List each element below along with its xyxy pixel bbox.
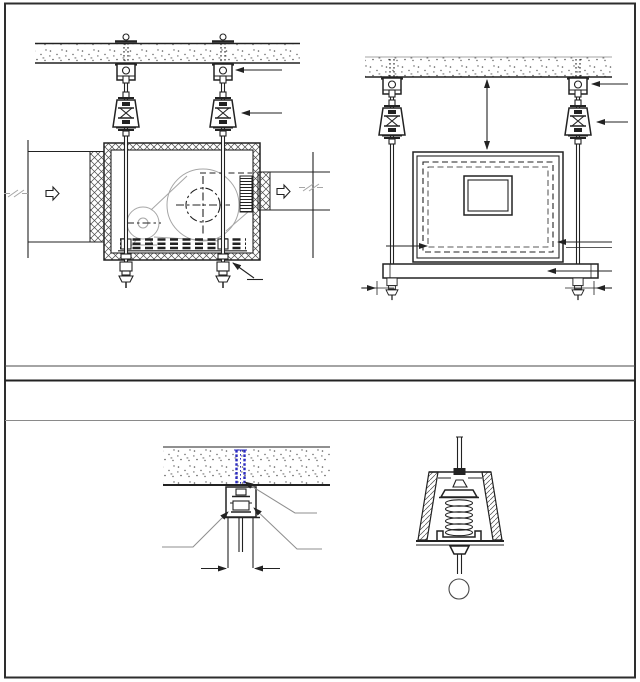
isolator-internals	[437, 480, 481, 540]
hanger-bracket	[115, 64, 137, 83]
channel-and-rod	[228, 517, 253, 568]
cad-drawing	[0, 0, 640, 682]
figure-side-view	[4, 34, 330, 288]
figure-anchor-detail	[162, 447, 330, 569]
bottom-nut	[450, 546, 469, 554]
adjustment-nut	[453, 480, 467, 487]
spring	[446, 500, 473, 536]
vibration-isolator	[379, 100, 405, 144]
vibration-isolator	[113, 92, 139, 136]
duct-break-icon	[4, 190, 28, 197]
duct-break-icon	[299, 184, 323, 191]
rod-washer	[121, 254, 131, 259]
nut	[233, 501, 249, 510]
concrete-slab	[163, 447, 330, 485]
access-panel	[464, 176, 512, 215]
unit-casing	[413, 152, 563, 262]
rod-nut	[572, 278, 584, 300]
airflow-arrow-icon	[46, 187, 59, 200]
top-plate	[441, 490, 477, 497]
support-channel	[383, 264, 612, 278]
hanger-rod	[456, 437, 463, 472]
vibration-isolator	[565, 100, 591, 144]
concrete-slab	[35, 44, 300, 64]
callout-circle	[449, 579, 469, 599]
hanger-bracket	[212, 64, 234, 83]
concrete-slab	[365, 57, 612, 77]
sheet-frame	[5, 4, 635, 678]
inlet-duct	[4, 140, 90, 258]
outlet-duct	[270, 152, 330, 258]
hanger-bracket	[381, 78, 403, 97]
vibration-isolator	[210, 92, 236, 136]
drawing-sheet	[0, 0, 640, 682]
flexible-connector	[90, 152, 104, 243]
figure-spring-isolator-detail	[416, 437, 504, 599]
hanger-bracket	[567, 78, 589, 97]
bolt-head	[236, 489, 246, 495]
hanger-rod	[239, 517, 243, 552]
rod-nut	[119, 262, 133, 288]
rod-washer	[218, 254, 228, 259]
rod-nut	[216, 262, 230, 288]
rod-nut	[386, 278, 398, 300]
outlet-grille	[240, 176, 252, 212]
airflow-arrow-icon	[277, 185, 290, 198]
figure-end-view	[361, 57, 628, 300]
flexible-connector	[258, 172, 270, 210]
